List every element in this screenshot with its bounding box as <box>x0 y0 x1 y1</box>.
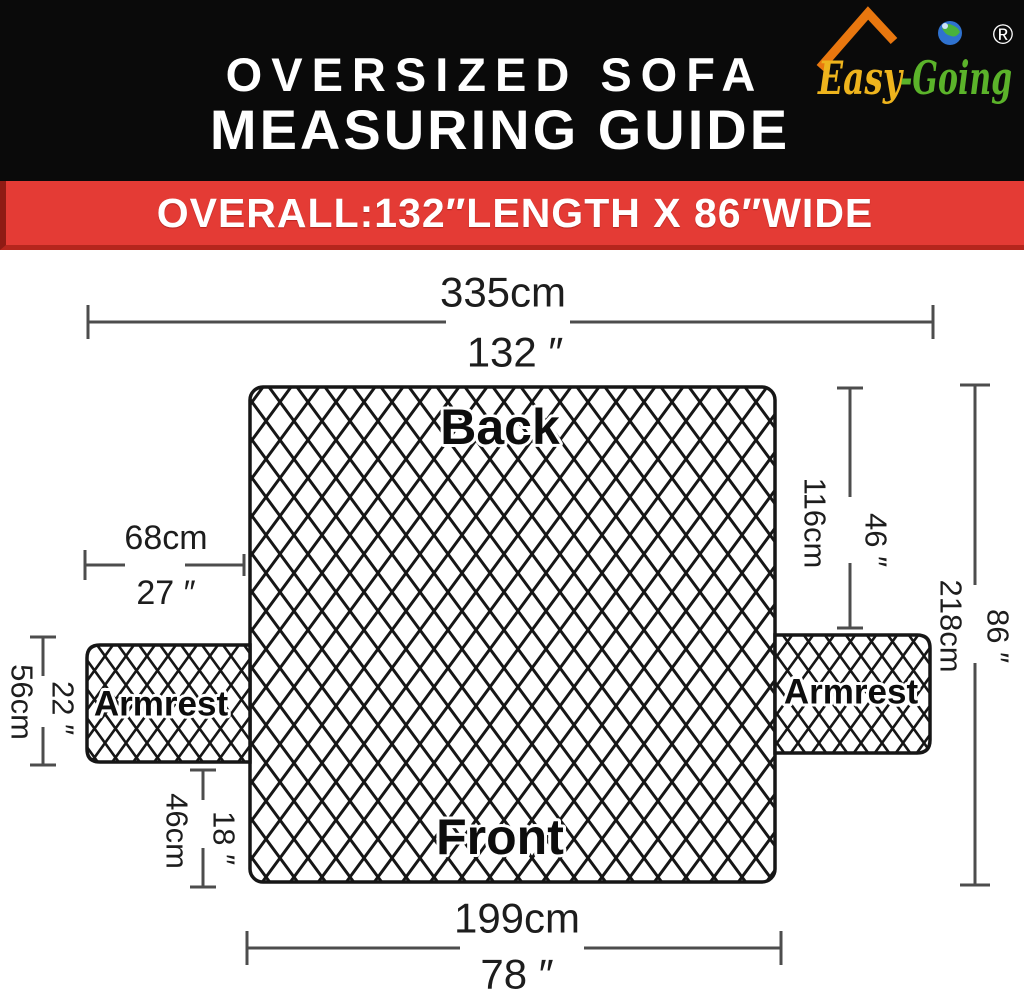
front-label: Front <box>436 809 564 865</box>
back-height-inch: 46 ″ <box>859 513 894 567</box>
globe-icon <box>938 21 962 45</box>
overall-width-cm: 218cm <box>934 579 969 672</box>
overall-length-cm: 335cm <box>440 269 566 316</box>
armrest-height-inch: 22 ″ <box>46 681 81 735</box>
front-width-inch: 78 ″ <box>480 951 553 998</box>
brand-logo: Easy -Going ® <box>812 4 1024 108</box>
cover-center-panel <box>250 387 775 882</box>
back-height-cm: 116cm <box>798 478 833 569</box>
back-label: Back <box>440 399 560 455</box>
overall-width-inch: 86 ″ <box>981 609 1016 663</box>
armrest-height-cm: 56cm <box>5 664 40 740</box>
measuring-guide-page: OVERSIZED SOFA MEASURING GUIDE Easy -Goi… <box>0 0 1024 998</box>
armrest-right-label: Armrest <box>784 673 919 712</box>
dim-line-back-height <box>837 388 863 628</box>
brand-going-text: -Going <box>900 51 1012 105</box>
front-skirt-height-cm: 46cm <box>160 793 195 869</box>
header: OVERSIZED SOFA MEASURING GUIDE Easy -Goi… <box>0 0 1024 181</box>
back-side-width-cm: 68cm <box>124 519 207 557</box>
armrest-left-label: Armrest <box>94 685 229 724</box>
overall-length-inch: 132 ″ <box>467 329 564 376</box>
sofa-cover-diagram: Back Front Armrest Armrest 335cm 132 ″ 6… <box>0 250 1024 998</box>
diagram-canvas: Back Front Armrest Armrest 335cm 132 ″ 6… <box>0 250 1024 998</box>
back-side-width-inch: 27 ″ <box>136 574 195 612</box>
registered-trademark: ® <box>993 19 1014 50</box>
overall-size-banner: OVERALL:132″LENGTH X 86″WIDE <box>0 181 1024 250</box>
front-skirt-height-inch: 18 ″ <box>207 811 242 865</box>
overall-size-text: OVERALL:132″LENGTH X 86″WIDE <box>157 190 874 237</box>
front-width-cm: 199cm <box>454 895 580 942</box>
brand-easy-text: Easy <box>817 51 905 105</box>
